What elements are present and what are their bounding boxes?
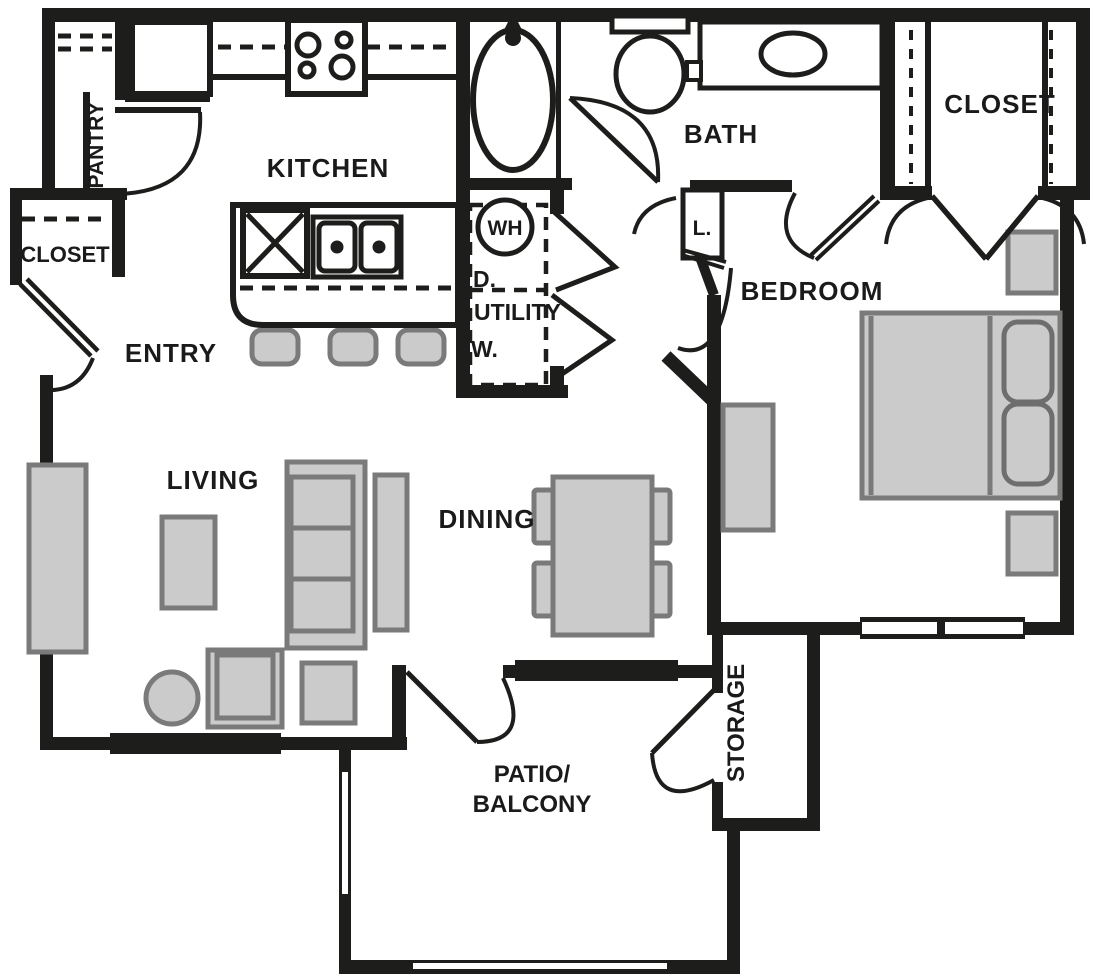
wall-hall-chamfer: [666, 356, 712, 400]
utility-bifold-doors: [552, 210, 615, 378]
bedroom-bath-door: [786, 193, 879, 260]
bathtub-icon: [473, 30, 553, 170]
washer-label: W.: [471, 336, 498, 362]
wall-entry-closet-top: [10, 188, 127, 200]
dining-table: [553, 477, 652, 635]
wall-patio-connector: [392, 665, 406, 750]
round-side-table: [146, 672, 198, 724]
wall-storage-left-upper: [712, 627, 723, 693]
nightstand: [1008, 232, 1056, 293]
water-heater-label: WH: [488, 217, 523, 240]
burner-icon: [331, 56, 353, 78]
burner-icon: [297, 34, 319, 56]
bar-stool: [398, 330, 444, 364]
armchair: [208, 650, 282, 727]
toilet-icon: [612, 16, 688, 112]
sofa-table: [375, 475, 407, 630]
counter-front-right: [365, 74, 456, 80]
linen-label: L.: [693, 217, 712, 240]
pantry-door: [115, 107, 201, 194]
sofa: [287, 462, 365, 648]
storage-label: STORAGE: [723, 664, 750, 782]
coffee-table: [162, 517, 215, 608]
bath-label: BATH: [684, 119, 758, 149]
wall-storage-bottom: [712, 818, 820, 831]
linen-closet-door: [634, 198, 676, 234]
bedroom-label: BEDROOM: [741, 276, 884, 306]
pillow: [1004, 322, 1052, 402]
wall-bedroom-west: [707, 295, 721, 635]
wall-bedroom-south-left: [712, 622, 862, 635]
entry-door: [20, 279, 98, 390]
wall-entry-closet-right: [112, 200, 125, 277]
wall-pantry-fridge: [115, 8, 130, 100]
railing-slit-bottom: [413, 963, 667, 969]
bedroom-window: [860, 617, 1025, 639]
patio-label-line2: BALCONY: [473, 791, 592, 818]
dining-chair: [534, 490, 553, 543]
pantry-label: PANTRY: [85, 102, 108, 189]
kitchen-sink-icon: [313, 217, 401, 277]
bedroom-closet-label: CLOSET: [944, 89, 1055, 119]
railing-slit-left: [342, 772, 348, 894]
bath-fixtures: [473, 12, 882, 258]
patio-label-line1: PATIO/: [494, 761, 571, 788]
burner-icon: [300, 63, 314, 77]
floor-plan: KITCHEN PANTRY CLOSET ENTRY BATH CLOSET …: [0, 0, 1099, 977]
wall-living-bottom: [40, 737, 407, 750]
pillow: [1004, 404, 1052, 484]
media-console: [29, 465, 86, 652]
stove-icon: [288, 20, 365, 94]
bar-stool: [330, 330, 376, 364]
wall-entry-closet-left: [10, 188, 22, 285]
vanity-sink-icon: [687, 22, 882, 88]
wall-right-upper: [1076, 8, 1090, 200]
wall-bedroom-south-right: [1023, 622, 1073, 635]
refrigerator-icon: [132, 22, 210, 94]
entry-label: ENTRY: [125, 338, 217, 368]
end-table: [302, 663, 355, 723]
living-label: LIVING: [167, 465, 260, 495]
dining-chair: [534, 563, 553, 616]
dryer-label: D.: [473, 266, 496, 292]
kitchen-label: KITCHEN: [267, 153, 390, 183]
dining-label: DINING: [439, 504, 536, 534]
storage-door: [652, 690, 714, 791]
dining-set: [534, 477, 670, 635]
counter-front-left: [210, 74, 288, 80]
wall-tub-thin: [556, 22, 561, 180]
burner-icon: [337, 33, 351, 47]
nightstand: [1008, 513, 1056, 574]
patio-door: [407, 672, 513, 742]
bar-stool: [252, 330, 298, 364]
wall-left-upper: [42, 8, 55, 193]
dresser: [723, 405, 773, 530]
wall-patio-right: [727, 830, 740, 974]
wall-storage-right: [807, 622, 820, 831]
entry-closet-label: CLOSET: [20, 242, 110, 267]
dishwasher-icon: [243, 210, 307, 276]
bed: [862, 313, 1060, 498]
wall-storage-left-lower: [712, 782, 723, 822]
utility-label: UTILITY: [474, 299, 561, 325]
bar-stools: [252, 330, 444, 364]
wall-utility-jamb-bottom: [550, 366, 564, 398]
